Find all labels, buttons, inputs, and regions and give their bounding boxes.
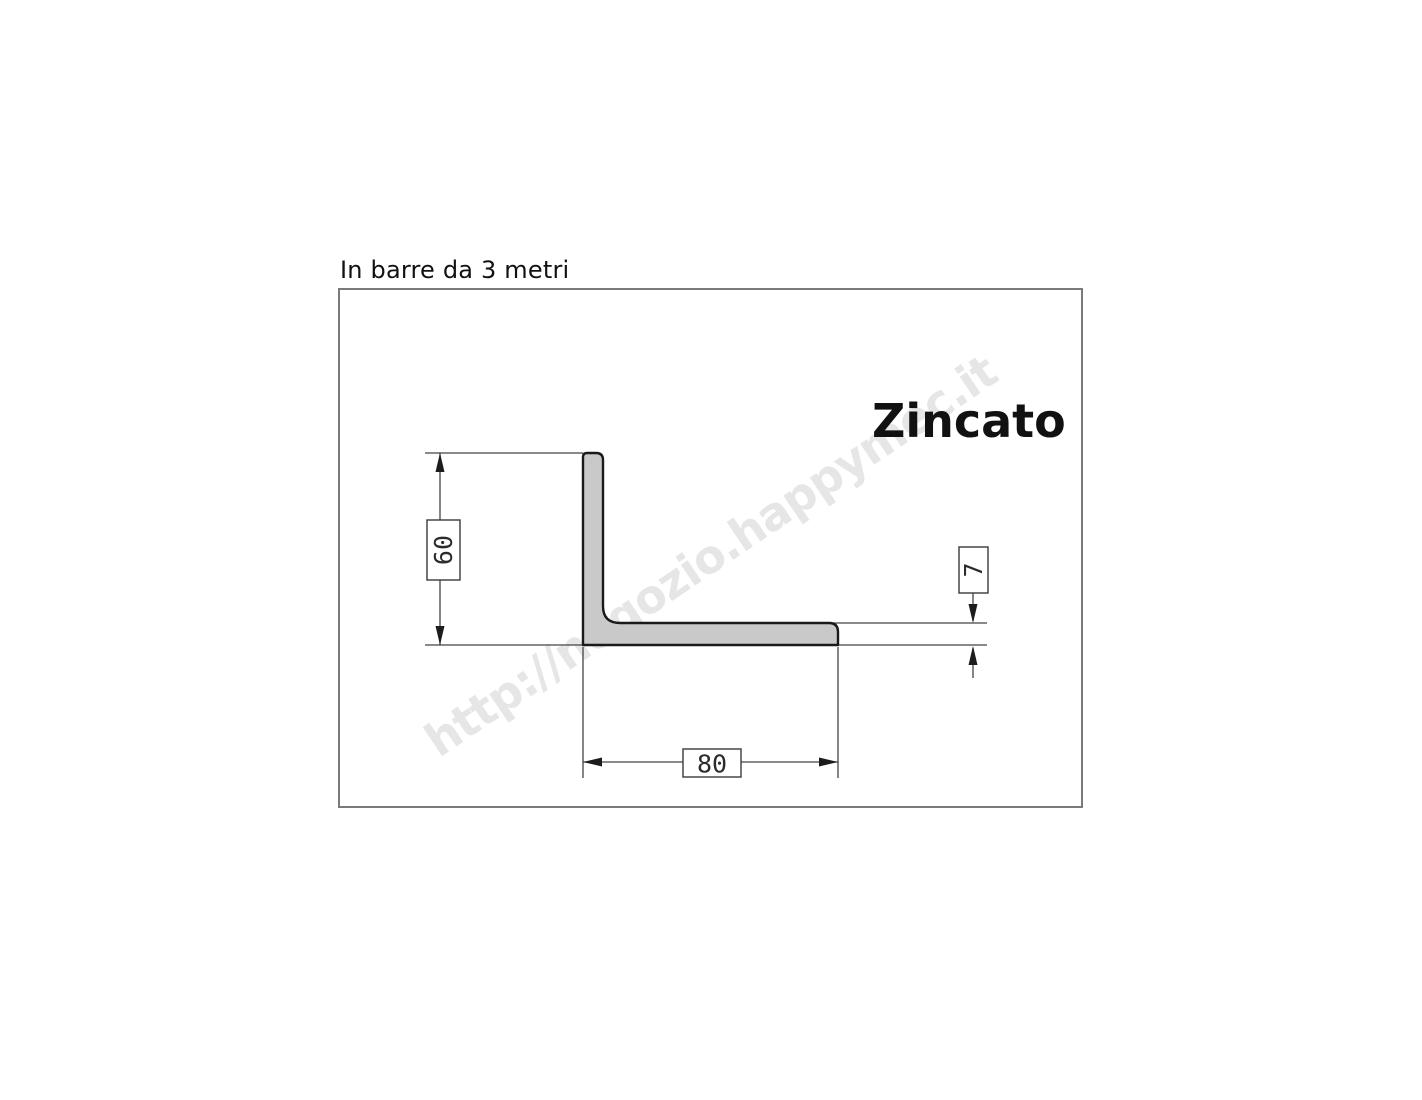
bar-length-note: In barre da 3 metri: [340, 256, 569, 284]
arrow-left-icon: [583, 758, 602, 767]
product-drawing-page: In barre da 3 metri http://negozio.happy…: [0, 0, 1422, 1100]
thickness-value-label: 7: [959, 562, 988, 577]
technical-drawing-svg: 60 7 80: [338, 288, 1083, 808]
height-value-label: 60: [429, 535, 458, 565]
arrow-up-icon: [969, 646, 978, 665]
dimension-thickness-7: 7: [959, 547, 988, 678]
dimension-height-60: 60: [427, 453, 460, 645]
dimension-width-80: 80: [583, 749, 838, 779]
arrow-down-icon: [436, 626, 445, 645]
arrow-down-icon: [969, 604, 978, 623]
extension-lines: [425, 453, 987, 778]
finish-type-label: Zincato: [872, 394, 1066, 448]
arrow-right-icon: [819, 758, 838, 767]
angle-profile-section: [583, 453, 838, 645]
drawing-frame-container: http://negozio.happymec.it 60: [338, 288, 1083, 808]
width-value-label: 80: [697, 750, 727, 779]
arrow-up-icon: [436, 453, 445, 472]
